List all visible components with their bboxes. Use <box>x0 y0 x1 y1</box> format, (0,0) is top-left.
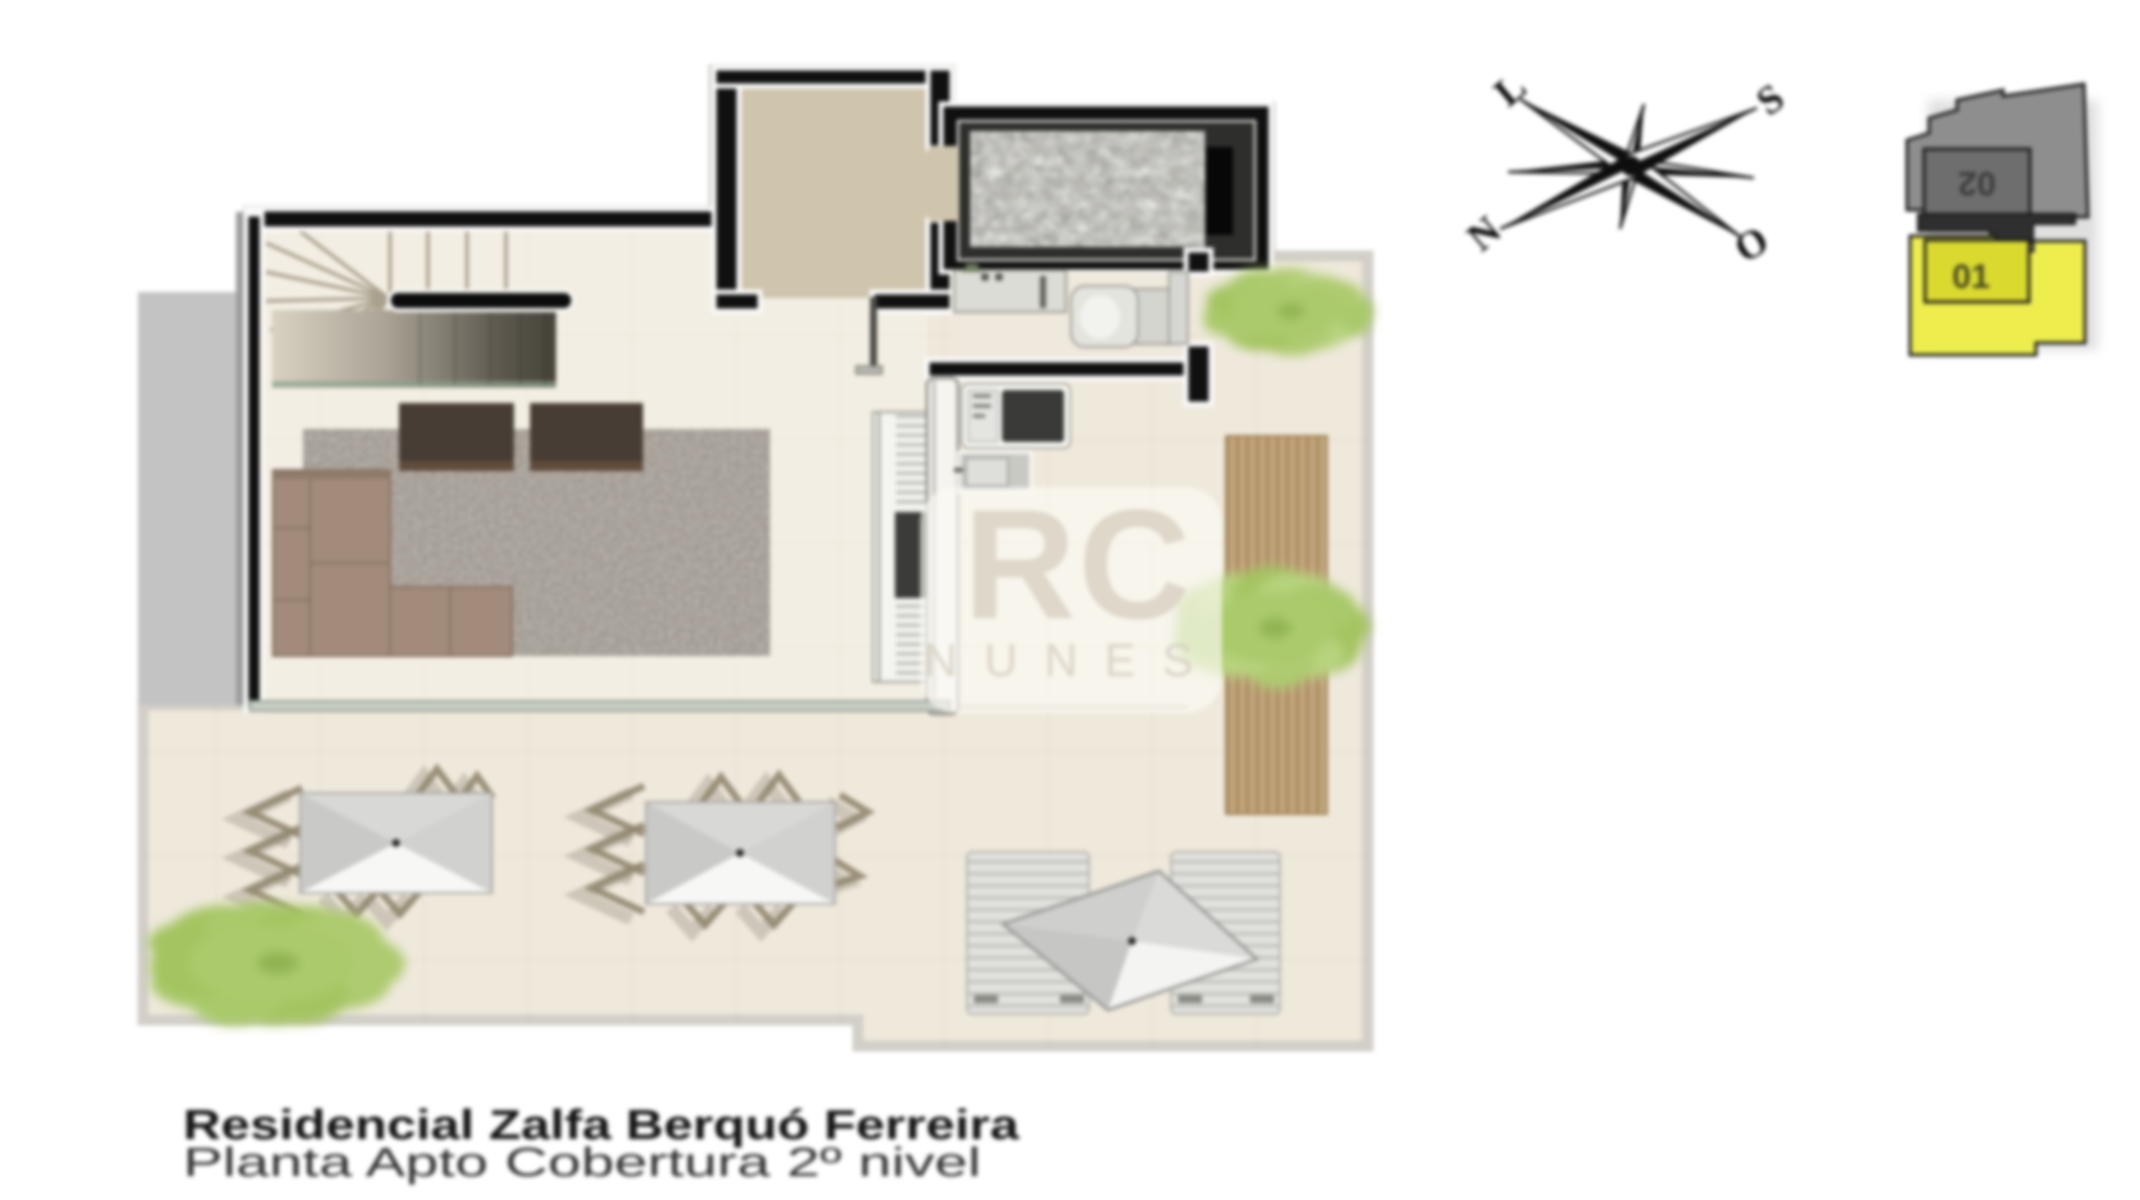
svg-text:NUNES: NUNES <box>924 634 1220 686</box>
svg-text:O: O <box>1727 217 1776 272</box>
svg-text:S: S <box>1748 74 1792 124</box>
svg-text:02: 02 <box>1958 164 1996 202</box>
svg-text:01: 01 <box>1952 258 1990 296</box>
svg-text:L: L <box>1485 64 1534 116</box>
svg-text:Planta Apto Cobertura 2º nivel: Planta Apto Cobertura 2º nivel <box>183 1139 981 1185</box>
svg-text:RC: RC <box>963 478 1192 652</box>
svg-text:N: N <box>1458 207 1509 260</box>
